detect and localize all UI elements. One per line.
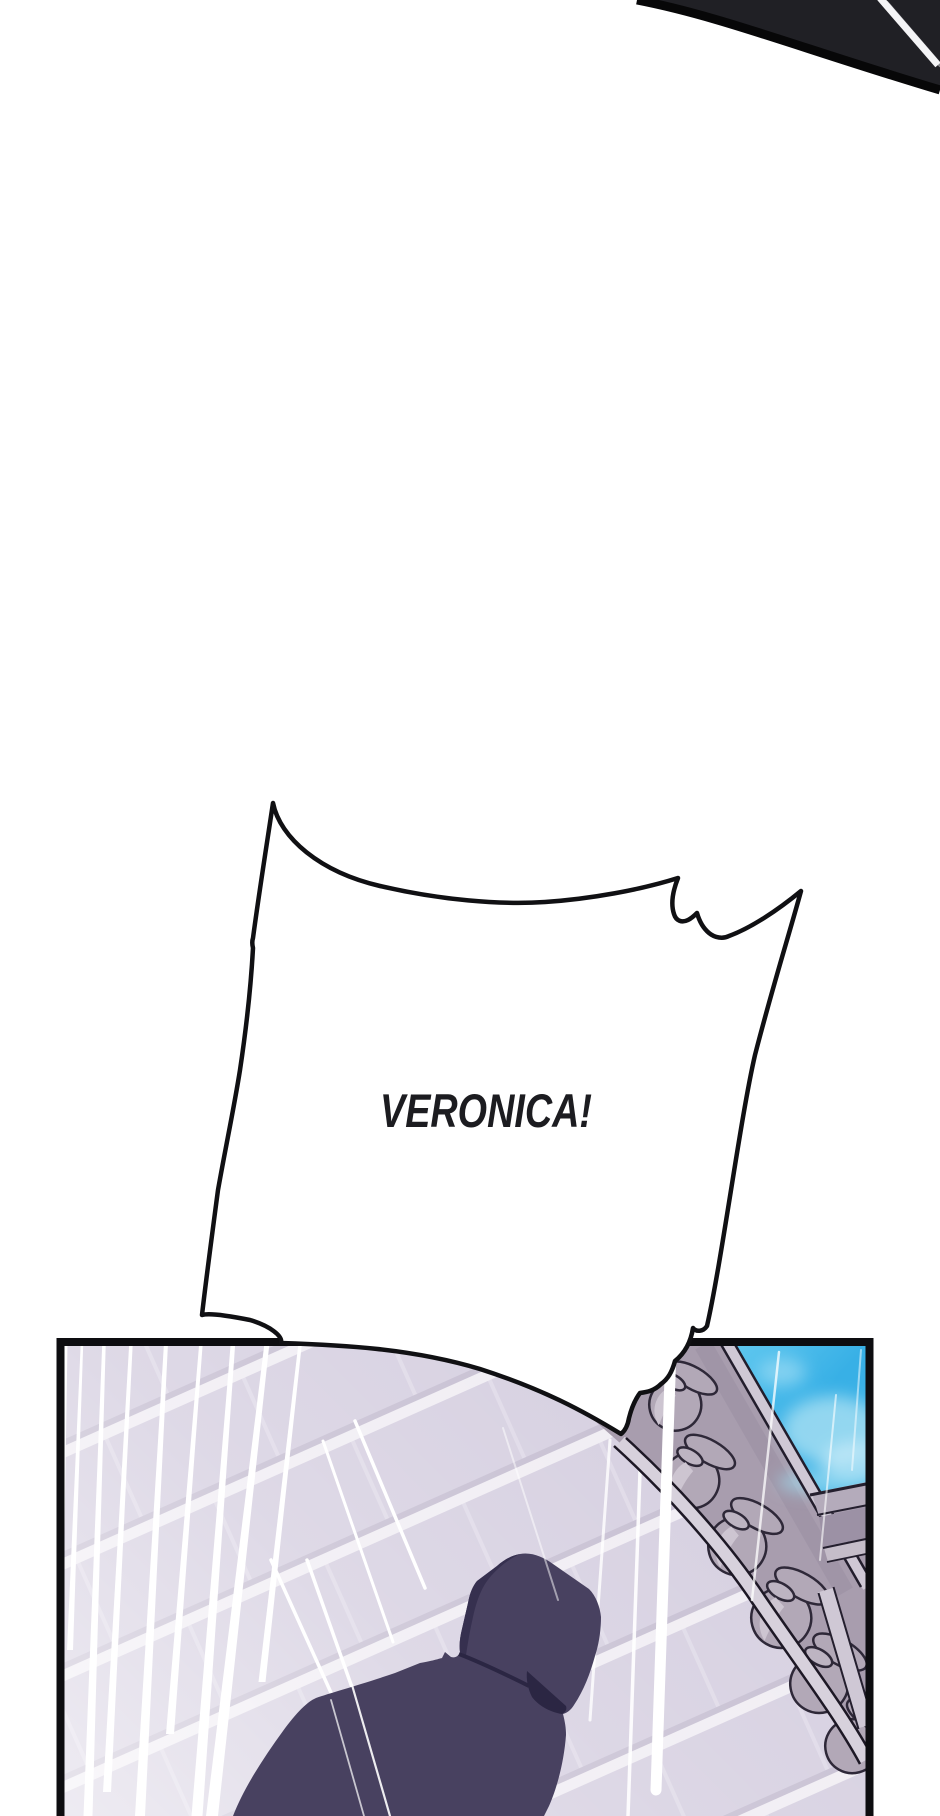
svg-text:VERONICA!: VERONICA! <box>380 1084 592 1137</box>
